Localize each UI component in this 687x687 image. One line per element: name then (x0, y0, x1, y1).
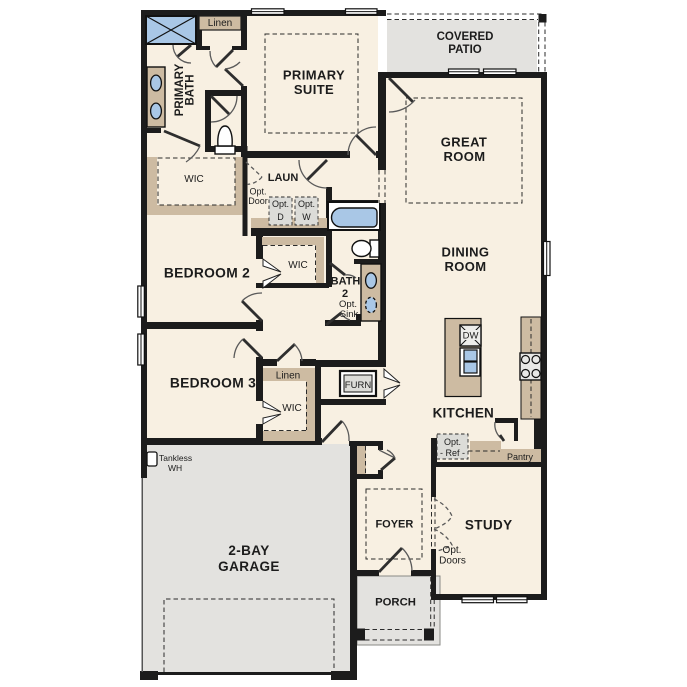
svg-text:BEDROOM 2: BEDROOM 2 (164, 266, 250, 281)
svg-text:LAUN: LAUN (268, 172, 299, 184)
svg-text:WIC: WIC (184, 174, 203, 185)
svg-text:WIC: WIC (282, 403, 301, 414)
svg-text:FOYER: FOYER (375, 519, 413, 531)
svg-text:GREAT: GREAT (441, 135, 488, 150)
svg-text:SUITE: SUITE (294, 82, 334, 97)
svg-text:Opt.: Opt. (272, 199, 289, 209)
svg-text:Opt.: Opt. (249, 187, 266, 197)
svg-text:BATH: BATH (331, 276, 361, 288)
svg-text:Linen: Linen (276, 371, 300, 382)
svg-text:ROOM: ROOM (443, 149, 485, 164)
svg-text:STUDY: STUDY (465, 518, 513, 533)
svg-text:Tankless: Tankless (159, 453, 192, 463)
svg-text:W: W (302, 212, 311, 222)
svg-text:Opt.: Opt. (444, 437, 461, 447)
svg-text:Doors: Doors (439, 556, 466, 567)
svg-text:Sink: Sink (340, 309, 359, 320)
svg-text:WH: WH (168, 463, 182, 473)
svg-text:DINING: DINING (442, 245, 490, 260)
svg-text:PRIMARY: PRIMARY (283, 68, 345, 83)
svg-text:2-BAY: 2-BAY (228, 543, 269, 558)
svg-text:BEDROOM 3: BEDROOM 3 (170, 376, 256, 391)
svg-text:FURN: FURN (345, 380, 372, 391)
svg-text:ROOM: ROOM (444, 259, 486, 274)
svg-text:Door: Door (248, 196, 268, 206)
svg-text:D: D (277, 212, 284, 222)
svg-text:KITCHEN: KITCHEN (433, 405, 494, 420)
svg-text:COVERED: COVERED (437, 31, 494, 43)
svg-text:BATH: BATH (185, 74, 197, 105)
svg-text:DW: DW (463, 331, 479, 342)
svg-text:WIC: WIC (288, 260, 307, 271)
svg-text:- Ref -: - Ref - (440, 448, 465, 458)
svg-text:Linen: Linen (208, 18, 232, 29)
svg-text:Opt.: Opt. (298, 199, 315, 209)
svg-text:PORCH: PORCH (375, 597, 416, 609)
svg-text:GARAGE: GARAGE (218, 559, 280, 574)
svg-text:Pantry: Pantry (507, 452, 534, 462)
svg-text:Opt.: Opt. (443, 545, 462, 556)
svg-text:PATIO: PATIO (448, 44, 481, 56)
